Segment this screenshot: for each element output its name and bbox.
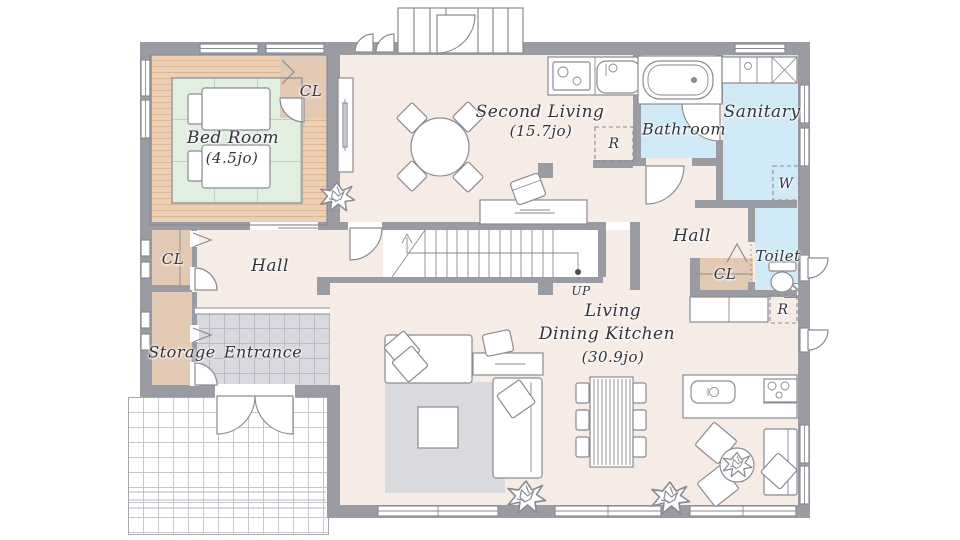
stairs [383,230,598,277]
casement-window-icon [808,330,828,350]
casement-window-icon [808,258,828,278]
plan-linework [0,0,960,540]
right-closet-label: CL [714,265,736,283]
stove [553,62,590,90]
desk [480,200,587,224]
hall-door-arc [350,228,382,260]
porch-steps [129,492,326,508]
fridge-lower-label: R [777,302,788,318]
entrance-door-arc [217,396,255,434]
dining-chair [576,383,589,403]
cooktop [764,379,797,402]
fridge-upper-label: R [608,136,619,152]
bedroom-size-label: (4.5jo) [206,149,259,167]
sanitary-label: Sanitary [724,102,801,122]
toilet-bowl [771,272,793,292]
storage-label: Storage [148,343,215,362]
entrance-label: Entrance [224,343,302,362]
hall-left-label: Hall [251,256,289,276]
bed-headboard [188,94,202,124]
dining-chair [576,437,589,457]
ldk-size-label: (30.9jo) [582,348,645,366]
entrance-step [195,308,330,314]
washer-label: W [779,176,794,192]
second-living-label: Second Living [476,102,605,122]
left-closet-door-arc [195,268,217,290]
bathroom-label: Bathroom [642,120,726,139]
bed-headboard [188,151,202,181]
entrance-door-arc [255,396,293,434]
dining-chair [633,437,646,457]
dining-chair [576,410,589,430]
second-living-furniture [338,57,645,224]
bifold-door-icon [727,244,747,262]
dining-chair [633,383,646,403]
hall-right-label: Hall [673,226,711,246]
bathtub [643,61,713,99]
stairs-up-label: UP [571,284,590,298]
ldk-label-line1: Living [585,301,642,321]
bedroom-closet-label: CL [300,82,322,100]
floor-plan: Bed Room (4.5jo) CL Second Living (15.7j… [0,0,960,540]
pillar [538,163,553,178]
bedroom-closet-door-arc [280,98,304,122]
kitchen-sink [691,381,735,403]
dining-table [590,377,633,467]
storage-door-arc [195,363,217,385]
toilet-label: Toilet [755,247,800,265]
bifold-door-icon [282,60,294,84]
bedroom-label: Bed Room [187,128,279,148]
awning-window-icon [355,34,373,52]
bed [202,88,270,130]
coffee-table [418,407,458,448]
sink [597,61,640,93]
dining-chair [633,410,646,430]
second-living-size-label: (15.7jo) [510,122,573,140]
vanity-counter [722,57,797,83]
washroom-door-arc [646,166,684,204]
left-closet-label: CL [162,250,184,268]
ldk-label-line2: Dining Kitchen [539,324,675,344]
awning-window-icon [376,34,394,52]
